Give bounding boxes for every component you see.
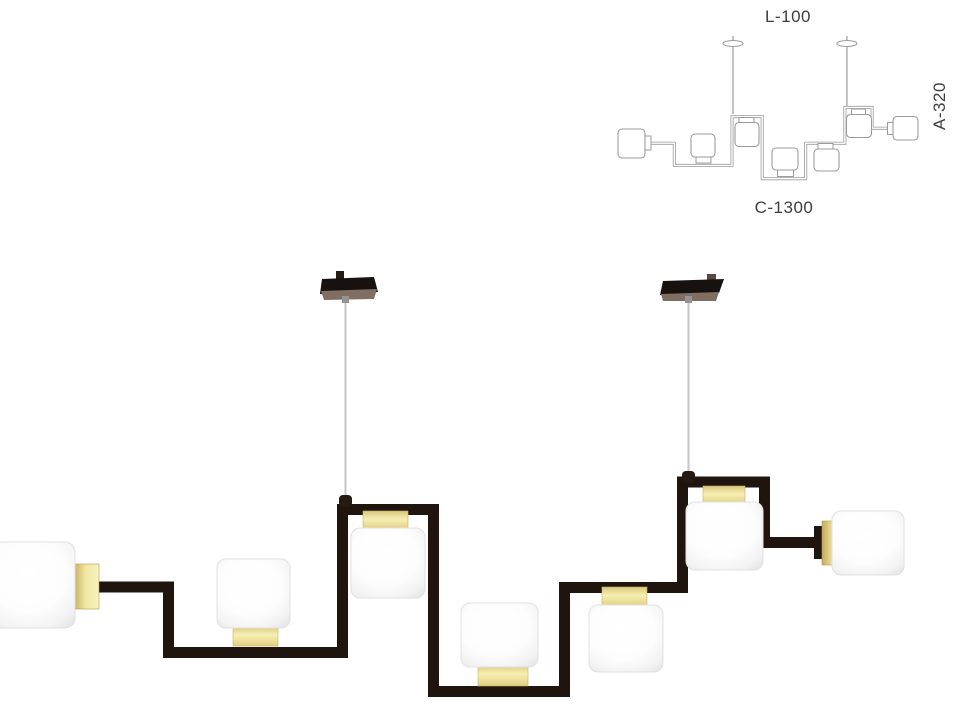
glass-cube-shade-6 bbox=[686, 502, 763, 570]
drawing-canopy-right bbox=[837, 41, 857, 47]
cable-knob-right bbox=[682, 471, 695, 483]
ceiling-canopy-left bbox=[320, 271, 378, 303]
dimension-label-c: C-1300 bbox=[736, 198, 832, 218]
brass-holder-5 bbox=[602, 587, 647, 606]
glass-cube-shade-2 bbox=[217, 559, 290, 628]
fixture-photo bbox=[0, 271, 904, 692]
dimension-label-a: A-320 bbox=[930, 67, 950, 145]
drawing-cube-7 bbox=[893, 117, 918, 141]
dimension-label-l: L-100 bbox=[740, 7, 836, 27]
drawing-cube-6 bbox=[847, 115, 872, 138]
drawing-cube-2 bbox=[691, 134, 715, 157]
glass-cube-shade-4 bbox=[461, 603, 538, 667]
drawing-cube-5 bbox=[814, 149, 839, 171]
brass-holder-1 bbox=[73, 564, 99, 609]
brass-holder-3 bbox=[363, 511, 408, 529]
ceiling-canopy-right bbox=[660, 274, 724, 303]
glass-cube-shade-5 bbox=[589, 605, 663, 672]
drawing-cube-4 bbox=[772, 148, 798, 170]
dimension-drawing bbox=[618, 36, 918, 179]
drawing-cube-1 bbox=[618, 129, 645, 158]
glass-cube-shade-1 bbox=[0, 542, 75, 628]
brass-holder-2 bbox=[233, 626, 278, 646]
pendant-light-artwork bbox=[0, 0, 962, 706]
drawing-cube-3 bbox=[735, 123, 759, 147]
product-image-canvas: L-100 A-320 C-1300 bbox=[0, 0, 962, 706]
glass-cube-shade-3 bbox=[351, 528, 425, 598]
drawing-canopy-left bbox=[723, 41, 743, 47]
cable-fitting bbox=[685, 296, 692, 303]
cable-knob-left bbox=[339, 495, 352, 507]
glass-cube-shade-7 bbox=[832, 511, 904, 575]
brass-holder-6 bbox=[703, 486, 745, 504]
cable-fitting bbox=[342, 296, 349, 303]
